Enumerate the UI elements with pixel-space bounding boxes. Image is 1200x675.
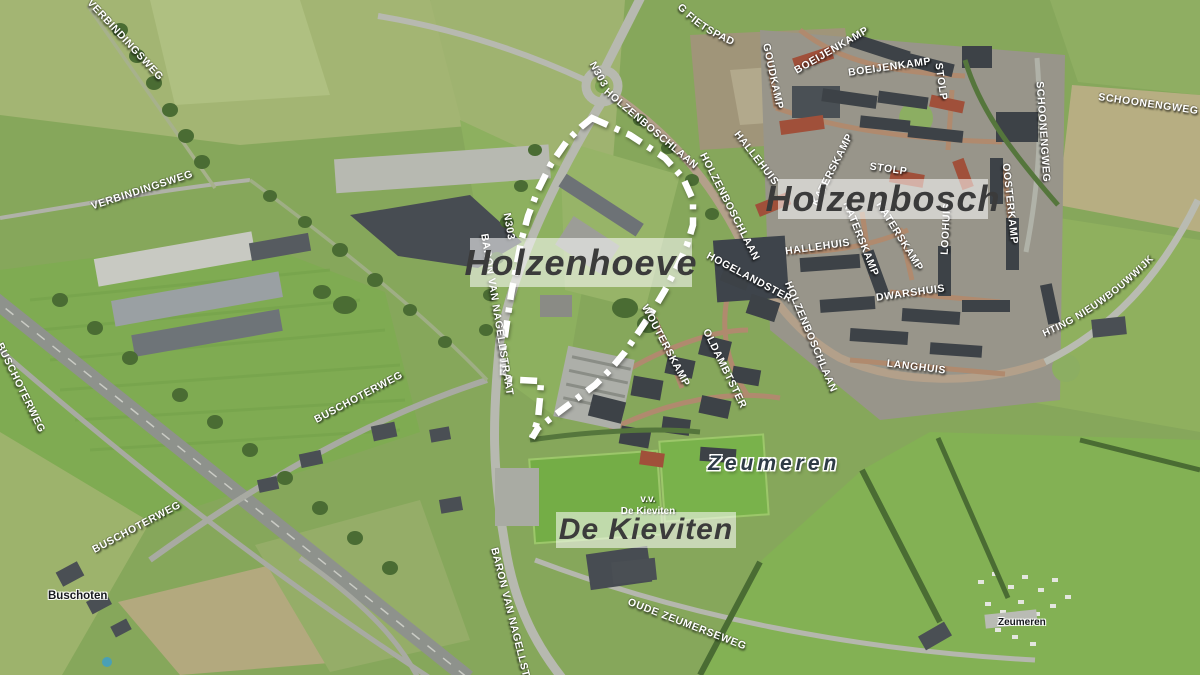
place-label-zeumeren-camping: Zeumeren bbox=[998, 617, 1046, 628]
place-label-buschoten: Buschoten bbox=[48, 590, 107, 602]
area-label-zeumeren: Zeumeren bbox=[708, 452, 840, 476]
aerial-map: VERBINDINGSWEG VERBINDINGSWEG BUSCHOTERW… bbox=[0, 0, 1200, 675]
area-label-holzenhoeve: Holzenhoeve bbox=[470, 238, 692, 287]
area-label-holzenbosch: Holzenbosch bbox=[778, 179, 988, 219]
club-label-line1: v.v. bbox=[600, 494, 696, 506]
area-label-de-kieviten: De Kieviten bbox=[556, 512, 736, 548]
